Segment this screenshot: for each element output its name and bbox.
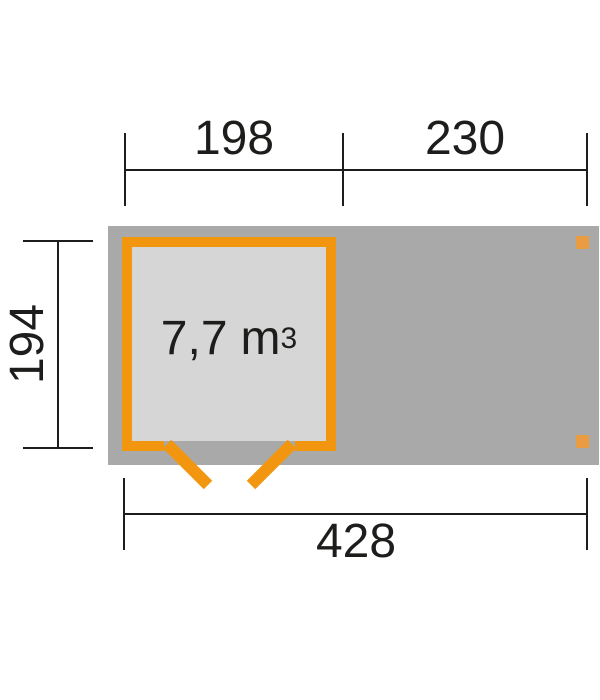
floor-plan-diagram: 198 230 194 7,7m3 428 xyxy=(0,0,600,700)
volume-unit: m xyxy=(241,315,281,363)
dimension-tick-left-top xyxy=(23,240,93,242)
volume-exponent: 3 xyxy=(281,324,298,354)
dimension-label-total-width: 428 xyxy=(124,518,588,566)
door-opening xyxy=(164,441,295,451)
post-marker-top xyxy=(576,236,589,249)
post-marker-bottom xyxy=(576,435,589,448)
room-volume-label: 7,7m3 xyxy=(122,237,336,441)
dimension-label-canopy-width: 230 xyxy=(343,115,587,163)
dimension-tick-left-bottom xyxy=(23,447,93,449)
volume-value: 7,7 xyxy=(161,315,228,363)
dimension-line-top xyxy=(125,169,587,171)
dimension-label-depth: 194 xyxy=(4,304,52,384)
dimension-line-left xyxy=(57,241,59,449)
dimension-label-room-width: 198 xyxy=(125,115,343,163)
